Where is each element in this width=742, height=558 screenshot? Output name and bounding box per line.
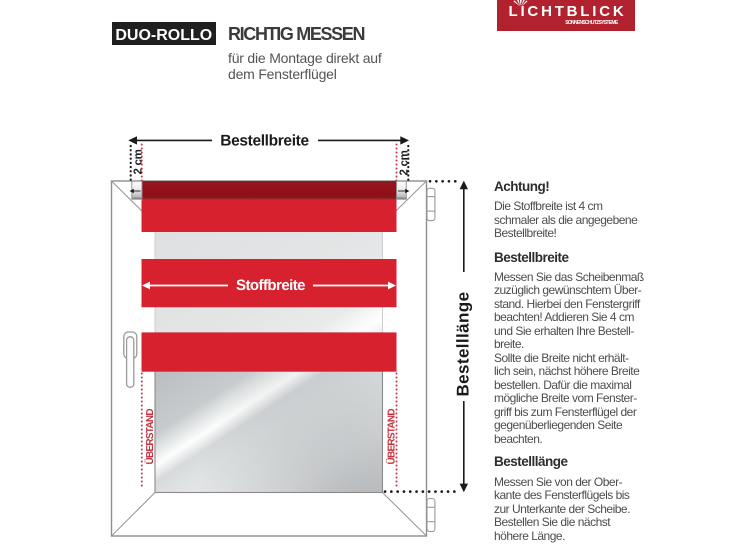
svg-text:ÜBERSTAND: ÜBERSTAND xyxy=(386,409,398,465)
svg-text:2 cm: 2 cm xyxy=(133,149,145,174)
svg-text:2 cm: 2 cm xyxy=(399,150,411,175)
svg-text:Bestelllänge: Bestelllänge xyxy=(454,292,473,397)
svg-text:ÜBERSTAND: ÜBERSTAND xyxy=(144,409,156,465)
svg-text:Bestellbreite: Bestellbreite xyxy=(220,133,309,150)
svg-text:Stoffbreite: Stoffbreite xyxy=(236,277,305,294)
